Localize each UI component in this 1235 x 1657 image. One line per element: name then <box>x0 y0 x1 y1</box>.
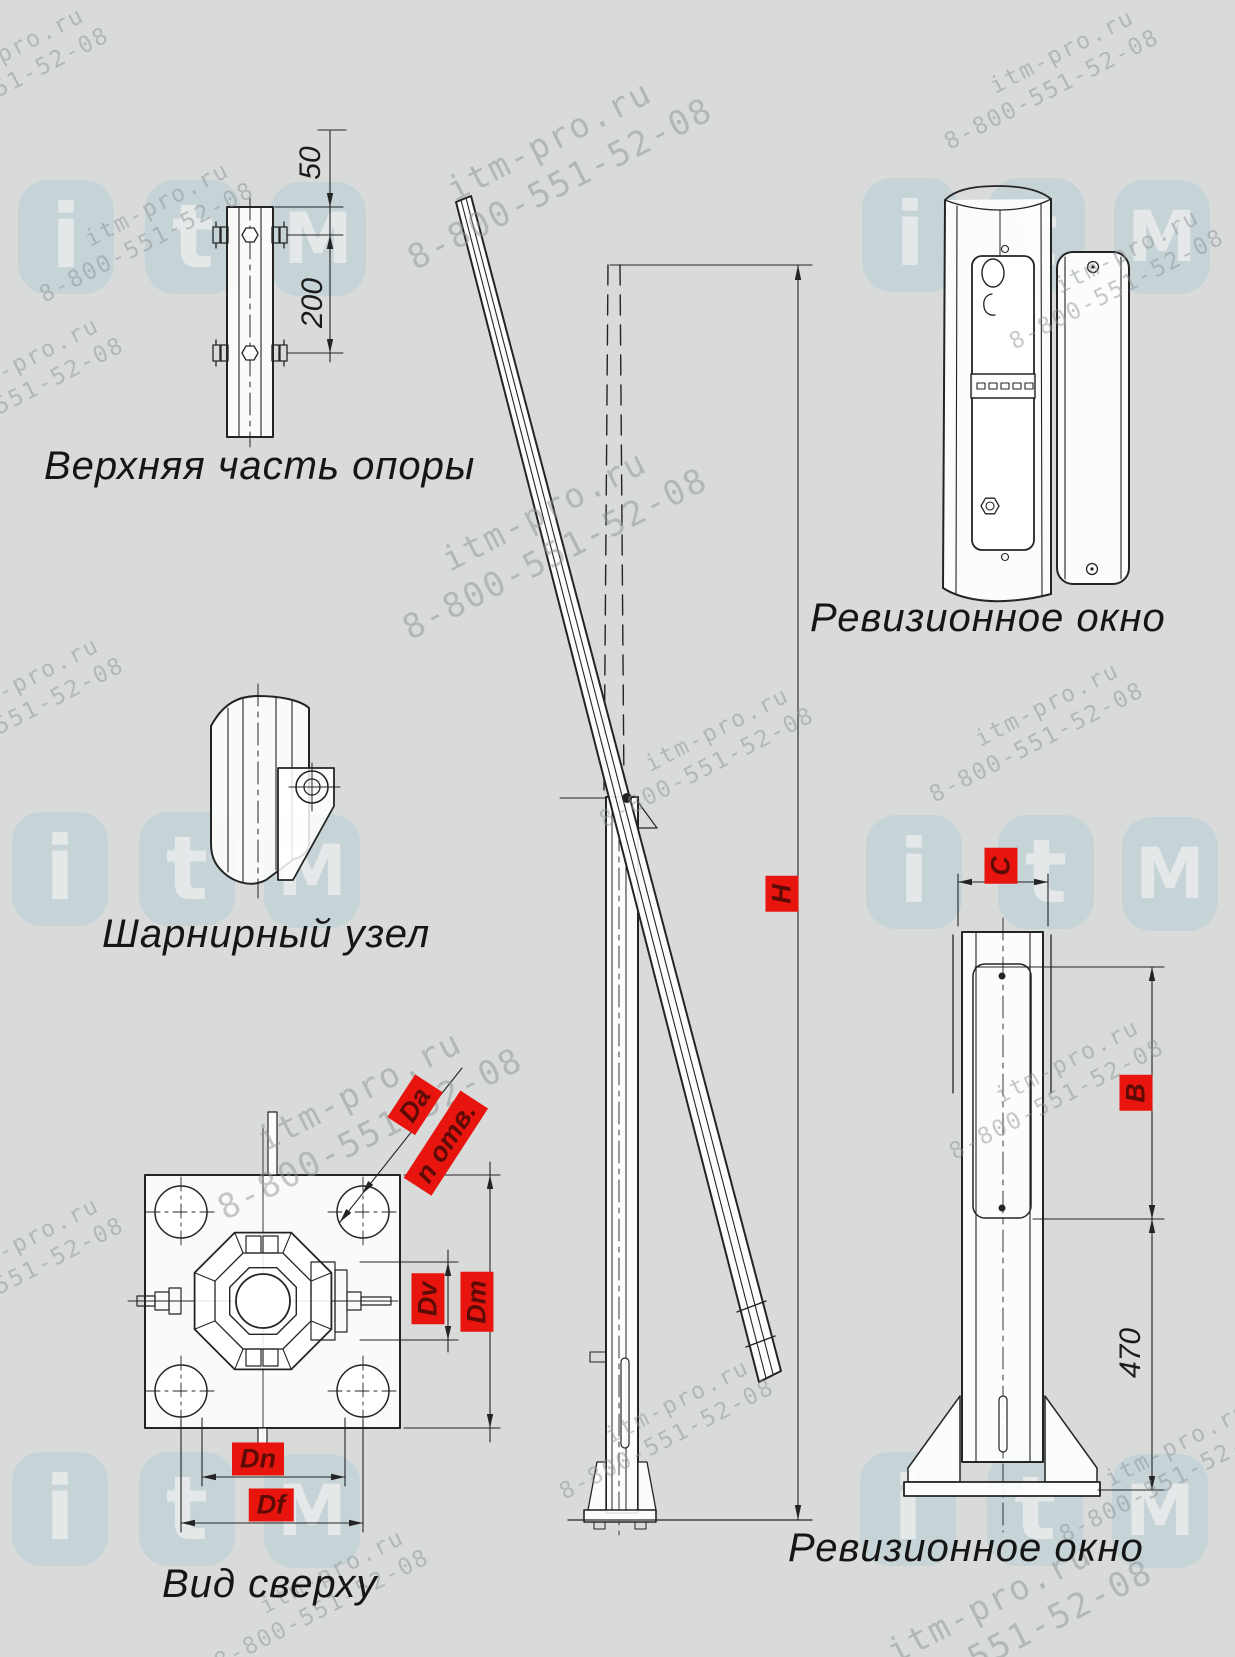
technical-drawing-page: i t M i t M i t M i t M i t M i t M <box>0 0 1235 1657</box>
caption-inspection-window-bottom: Ревизионное окно <box>788 1526 1144 1571</box>
label-c: C <box>984 848 1017 884</box>
figure-hinge <box>211 684 340 898</box>
label-dv: Dv <box>411 1274 444 1325</box>
caption-upper-part: Верхняя часть опоры <box>44 444 475 489</box>
label-dm: Dm <box>460 1272 493 1332</box>
label-dn: Dn <box>232 1442 284 1475</box>
label-h: H <box>765 876 798 912</box>
caption-inspection-window-top: Ревизионное окно <box>810 596 1166 641</box>
dim-200: 200 <box>296 278 330 328</box>
caption-hinge: Шарнирный узел <box>102 912 430 957</box>
dim-470: 470 <box>1114 1328 1148 1378</box>
figure-inspection-window-base <box>904 874 1164 1532</box>
dim-50: 50 <box>294 146 328 179</box>
label-df: Df <box>249 1488 294 1521</box>
figure-general-view <box>456 196 812 1535</box>
caption-top-view: Вид сверху <box>162 1562 377 1607</box>
label-b: B <box>1119 1075 1152 1111</box>
